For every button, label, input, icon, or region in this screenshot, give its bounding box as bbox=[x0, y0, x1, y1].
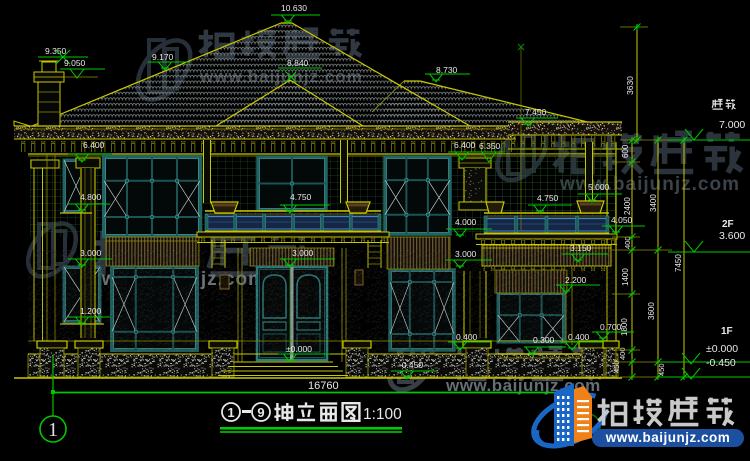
svg-text:±0.000: ±0.000 bbox=[286, 344, 312, 354]
svg-text:3400: 3400 bbox=[649, 194, 658, 212]
svg-text:8.730: 8.730 bbox=[436, 65, 458, 75]
svg-text:6.400: 6.400 bbox=[83, 140, 105, 150]
svg-text:1800: 1800 bbox=[620, 318, 629, 336]
svg-text:www.baijunjz.com: www.baijunjz.com bbox=[605, 430, 731, 445]
svg-text:3.000: 3.000 bbox=[455, 249, 477, 259]
svg-text:4.050: 4.050 bbox=[611, 215, 633, 225]
svg-text:9.350: 9.350 bbox=[45, 46, 67, 56]
svg-text:5.000: 5.000 bbox=[588, 182, 610, 192]
svg-text:7.000: 7.000 bbox=[719, 119, 745, 131]
svg-text:3.000: 3.000 bbox=[80, 248, 102, 258]
svg-text:3.600: 3.600 bbox=[719, 230, 745, 242]
svg-text:4.750: 4.750 bbox=[537, 193, 559, 203]
svg-text:-0.450: -0.450 bbox=[706, 357, 736, 369]
svg-text:1400: 1400 bbox=[621, 268, 630, 286]
svg-text:1.200: 1.200 bbox=[80, 306, 102, 316]
svg-text:6.350: 6.350 bbox=[479, 141, 501, 151]
svg-text:6.400: 6.400 bbox=[454, 140, 476, 150]
svg-text:2.200: 2.200 bbox=[565, 275, 587, 285]
svg-text:400: 400 bbox=[618, 347, 627, 360]
svg-text:0.300: 0.300 bbox=[533, 335, 555, 345]
svg-text:450: 450 bbox=[657, 363, 666, 376]
svg-text:0.400: 0.400 bbox=[568, 332, 590, 342]
svg-text:9.050: 9.050 bbox=[64, 58, 86, 68]
svg-text:9: 9 bbox=[257, 405, 264, 420]
svg-text:8.840: 8.840 bbox=[287, 58, 309, 68]
svg-text:0.400: 0.400 bbox=[456, 332, 478, 342]
svg-text:7.450: 7.450 bbox=[525, 107, 547, 117]
svg-text:9.170: 9.170 bbox=[152, 52, 174, 62]
svg-text:10.630: 10.630 bbox=[281, 3, 307, 13]
svg-text:0.700: 0.700 bbox=[600, 322, 622, 332]
svg-text:16760: 16760 bbox=[308, 380, 339, 392]
svg-text:4.750: 4.750 bbox=[290, 192, 312, 202]
svg-text:3600: 3600 bbox=[647, 302, 656, 320]
svg-text:2F: 2F bbox=[722, 219, 734, 230]
svg-text:±0.000: ±0.000 bbox=[706, 343, 738, 355]
svg-text:400: 400 bbox=[623, 236, 632, 249]
svg-text:-0.450: -0.450 bbox=[399, 360, 423, 370]
svg-text:4.000: 4.000 bbox=[455, 217, 477, 227]
svg-text:3.150: 3.150 bbox=[570, 243, 592, 253]
svg-text:1:100: 1:100 bbox=[363, 406, 402, 423]
svg-text:3630: 3630 bbox=[625, 76, 635, 95]
svg-text:7450: 7450 bbox=[674, 254, 683, 272]
svg-text:3.000: 3.000 bbox=[292, 248, 314, 258]
svg-text:1: 1 bbox=[227, 405, 234, 420]
svg-text:1F: 1F bbox=[721, 326, 733, 337]
svg-text:2400: 2400 bbox=[623, 197, 632, 215]
svg-text:4.800: 4.800 bbox=[80, 192, 102, 202]
svg-text:600: 600 bbox=[621, 144, 630, 158]
svg-text:1: 1 bbox=[48, 419, 58, 441]
